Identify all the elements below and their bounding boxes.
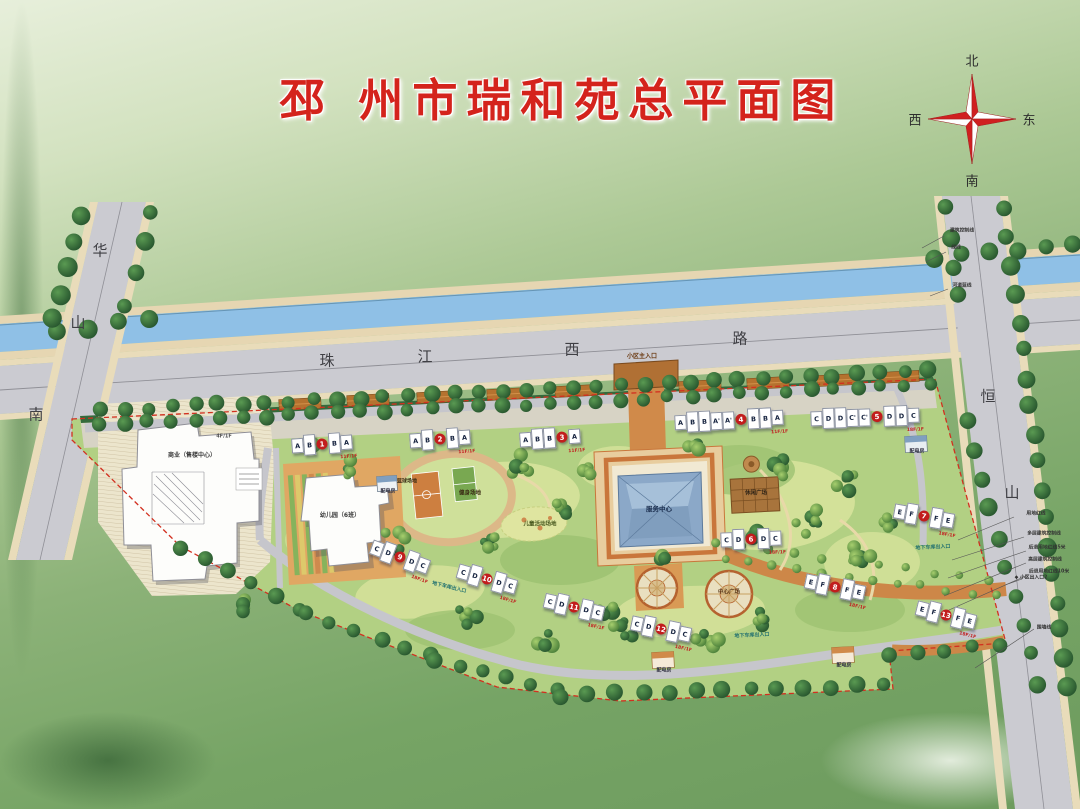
unit-A: A — [409, 433, 422, 449]
map-label: 配电房 — [836, 664, 851, 669]
building-3: ABB3A11F/1F — [519, 425, 581, 450]
map-label: 地下车库出入口 — [734, 633, 769, 640]
unit-E: E — [941, 512, 955, 529]
compass-west-label: 西 — [908, 110, 921, 129]
map-label: 绿线 — [951, 247, 961, 252]
unit-C: C — [678, 626, 693, 643]
map-label: 河道蓝线 — [952, 285, 971, 290]
map-label: 围墙线 — [1037, 627, 1051, 632]
map-label: 后退用地红线5米 — [1029, 547, 1066, 552]
unit-D: D — [757, 528, 770, 549]
map-label: 配电房 — [909, 450, 924, 455]
building-floors-label: 18F/1F — [410, 575, 428, 586]
building-floors-label: 11F/1F — [771, 429, 788, 435]
map-label: 建筑控制线 — [950, 230, 974, 235]
building-number-badge: 4 — [735, 414, 747, 426]
map-label: 儿童活动场地 — [523, 522, 556, 528]
building-number-badge: 2 — [434, 433, 446, 445]
unit-F: F — [904, 502, 919, 525]
building-floors-label: 11F/1F — [568, 448, 585, 454]
road-name-char: 路 — [732, 328, 747, 349]
unit-Cp: C' — [846, 408, 859, 426]
map-label: 小区主入口 — [627, 354, 657, 360]
unit-C: C — [720, 532, 733, 547]
building-8: EF8FE18F/1F — [803, 570, 867, 603]
map-label: 商业（售楼中心） — [168, 453, 216, 459]
map-label: 地下车库出入口 — [915, 545, 950, 552]
map-label: 中心广场 — [718, 590, 740, 596]
map-label: 地下车库出入口 — [431, 581, 466, 594]
unit-D: D — [834, 407, 847, 428]
road-name-char: 恒 — [980, 386, 995, 407]
plan-title: 邳 州市瑞和苑总平面图 — [280, 64, 845, 129]
map-label: 用地红线 — [1026, 513, 1045, 518]
building-floors-label: 18F/1F — [848, 603, 866, 611]
building-5: CDDC'C'5DDC18F/1F — [810, 405, 920, 430]
unit-B: B — [686, 411, 699, 433]
unit-D: D — [883, 405, 896, 426]
map-label: 配电房 — [656, 669, 671, 674]
unit-D: D — [732, 529, 745, 550]
unit-B: B — [747, 408, 760, 430]
unit-A: A — [568, 428, 581, 444]
unit-A: A — [771, 410, 784, 426]
unit-A: A — [674, 415, 687, 431]
building-floors-label: 18F/1F — [674, 645, 692, 653]
unit-B: B — [759, 407, 772, 429]
building-floors-label: 11F/1F — [340, 454, 357, 460]
unit-A: A — [458, 429, 471, 445]
road-name-char: 山 — [1004, 482, 1019, 503]
map-label: 健身场地 — [459, 491, 481, 497]
map-label: 多层建筑控制线 — [1027, 533, 1061, 538]
unit-C: C — [810, 411, 823, 426]
unit-A: A — [291, 438, 304, 454]
road-name-char: 华 — [92, 240, 107, 261]
unit-Ap: A' — [722, 411, 735, 430]
building-9: CD9DC18F/1F — [368, 537, 433, 578]
building-11: CD11DC18F/1F — [542, 590, 606, 624]
building-floors-label: 18F/1F — [769, 550, 786, 556]
unit-B: B — [303, 434, 316, 456]
building-number-badge: 3 — [556, 431, 568, 443]
compass-east-label: 东 — [1022, 110, 1035, 129]
map-label: 高层建筑控制线 — [1028, 559, 1062, 564]
building-6: CD6DC18F/1F — [720, 527, 782, 550]
compass-north-label: 北 — [965, 51, 978, 70]
building-12: CD12DC18F/1F — [629, 612, 693, 645]
unit-C: C — [503, 577, 519, 595]
compass-rose: 北 东 南 西 — [905, 46, 1039, 196]
unit-A: A — [340, 434, 353, 450]
building-floors-label: 18F/1F — [907, 427, 924, 433]
building-4: ABBA'A'4BBA11F/1F — [674, 407, 784, 434]
unit-C: C — [769, 530, 782, 545]
building-floors-label: 11F/1F — [458, 449, 475, 455]
road-name-char: 西 — [564, 339, 579, 360]
unit-Ap: A' — [710, 411, 723, 430]
building-2: AB2BA11F/1F — [409, 426, 471, 451]
road-name-char: 江 — [417, 346, 432, 367]
building-floors-label: 18F/1F — [938, 531, 956, 539]
map-label: 4F/1F — [216, 435, 232, 440]
map-label: 幼儿园（6班） — [320, 513, 360, 519]
unit-C: C — [907, 408, 920, 423]
building-number-badge: 7 — [918, 510, 931, 523]
map-label: 配电房 — [380, 490, 395, 495]
labels-layer: 邳 州市瑞和苑总平面图 北 东 南 西 珠江西路华山南恒山 AB1BA11F/1… — [0, 0, 1080, 809]
unit-B: B — [421, 429, 434, 451]
map-label: 篮球场地 — [397, 480, 417, 485]
building-number-badge: 5 — [871, 411, 882, 422]
building-floors-label: 18F/1F — [959, 631, 977, 640]
unit-C: C — [590, 604, 605, 621]
unit-Cp: C' — [858, 408, 871, 426]
site-plan-canvas: 邳 州市瑞和苑总平面图 北 东 南 西 珠江西路华山南恒山 AB1BA11F/1… — [0, 0, 1080, 809]
building-number-badge: 1 — [316, 438, 328, 450]
compass-south-label: 南 — [965, 171, 978, 190]
building-13: EF13FE18F/1F — [914, 597, 978, 632]
building-number-badge: 6 — [745, 533, 756, 544]
road-name-char: 珠 — [319, 350, 334, 371]
map-label: ◆ 小区出入口2 — [1015, 577, 1048, 582]
road-name-char: 山 — [70, 312, 85, 333]
unit-D: D — [895, 405, 908, 426]
unit-B: B — [543, 427, 556, 449]
unit-E: E — [962, 612, 977, 629]
map-label: 休闲广场 — [745, 491, 767, 497]
unit-A: A — [519, 432, 532, 448]
building-floors-label: 18F/1F — [587, 623, 605, 632]
building-floors-label: 18F/1F — [499, 596, 517, 606]
road-name-char: 南 — [28, 404, 43, 425]
map-label: 服务中心 — [646, 506, 672, 513]
building-1: AB1BA11F/1F — [291, 431, 353, 456]
unit-D: D — [822, 408, 835, 429]
unit-E: E — [852, 584, 867, 601]
building-7: EF7FE18F/1F — [892, 500, 956, 531]
unit-B: B — [698, 410, 711, 432]
